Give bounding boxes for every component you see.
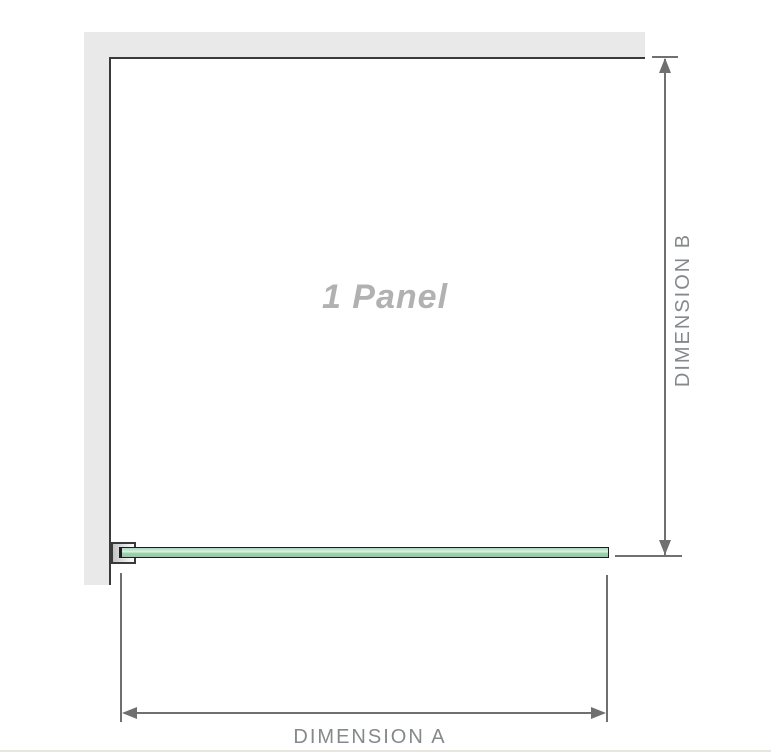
arrow-left-icon [122,707,137,719]
arrow-down-icon [659,540,671,555]
bottom-separator [0,750,771,752]
glass-panel [119,547,609,558]
dimension-a-right-extension [606,575,608,722]
dimension-a-label: DIMENSION A [240,726,500,749]
dimension-a-left-extension [120,573,122,722]
panel-dimension-diagram: 1 Panel DIMENSION B DIMENSION A [0,0,771,755]
dimension-b-label: DIMENSION B [671,200,695,420]
enclosure-top-edge [109,57,645,59]
arrow-right-icon [591,707,606,719]
wall-left-strip [84,32,109,585]
arrow-up-icon [659,58,671,73]
wall-top-strip [84,32,645,57]
enclosure-left-edge [109,57,111,585]
dimension-a-line [124,712,604,714]
panel-count-label: 1 Panel [285,278,485,316]
dimension-b-bottom-tick [615,555,682,557]
dimension-b-line [664,59,666,555]
